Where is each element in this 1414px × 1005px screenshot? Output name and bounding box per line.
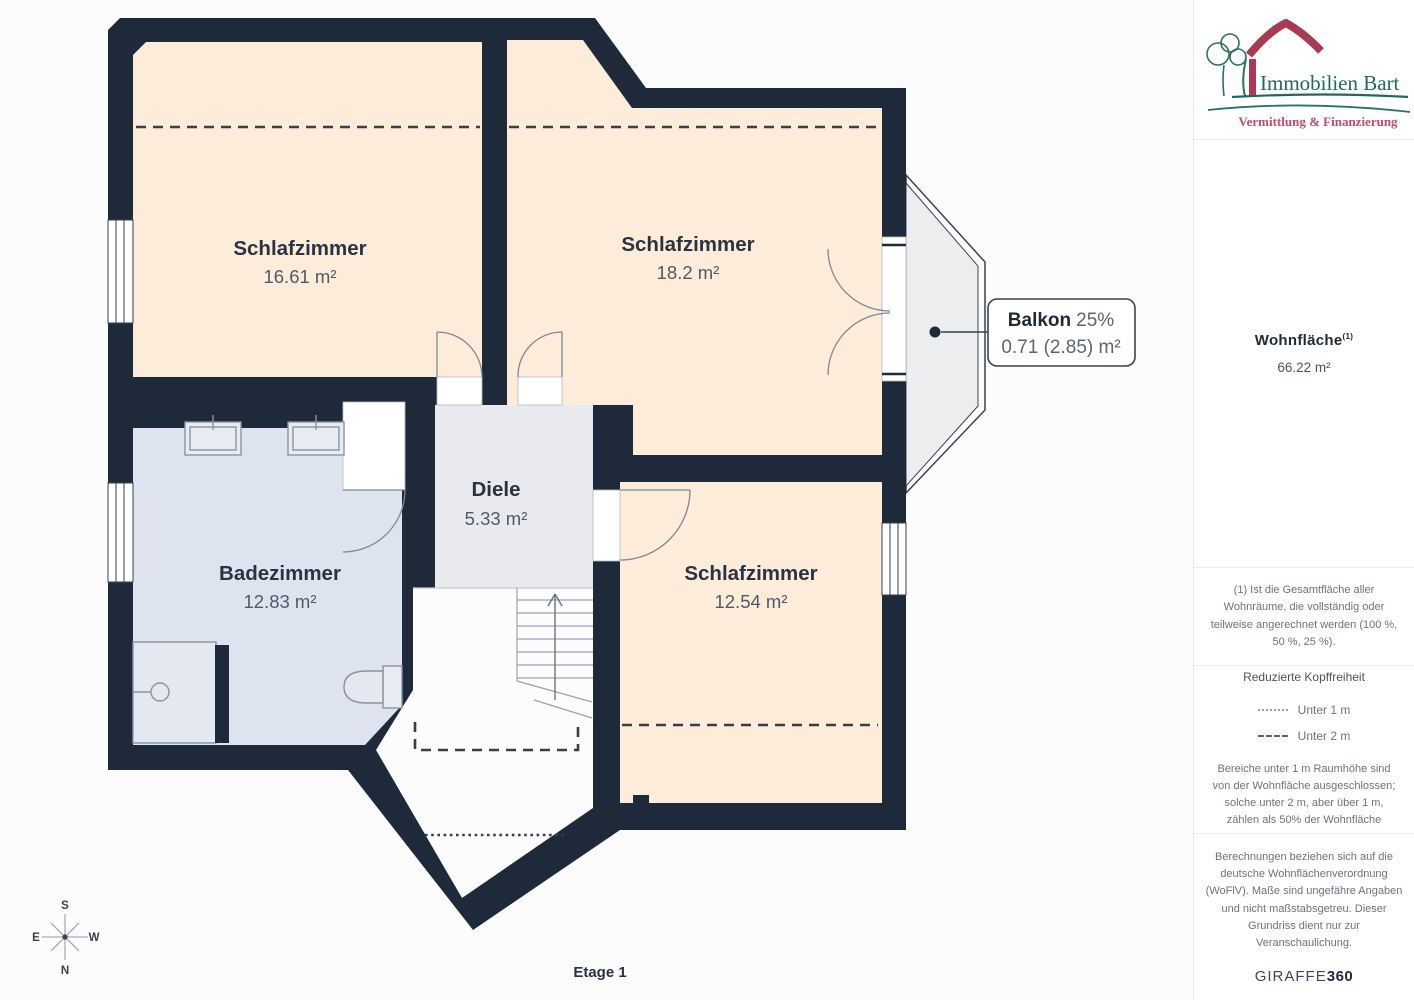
- compass-s: S: [61, 900, 69, 912]
- info-sidebar: Immobilien Bart Vermittlung & Finanzieru…: [1193, 0, 1414, 1000]
- room-fill-schlafzimmer-3: [620, 482, 882, 803]
- floor-label: Etage 1: [573, 964, 626, 981]
- toilet-tank: [383, 666, 402, 708]
- window: [108, 483, 133, 582]
- area-summary: Wohnfläche(1) 66.22 m²: [1194, 140, 1414, 568]
- footnote-text: (1) Ist die Gesamtfläche aller Wohnräume…: [1211, 582, 1398, 650]
- room-area: 5.33 m²: [465, 508, 528, 529]
- giraffe360-logo: GIRAFFE360: [1255, 968, 1354, 985]
- room-area: 12.83 m²: [243, 591, 316, 612]
- logo-swoosh: [1208, 105, 1410, 112]
- disclaimer-text: Berechnungen beziehen sich auf die deuts…: [1206, 849, 1403, 951]
- dashed-line-icon: [1258, 735, 1288, 737]
- balcony-area: 0.71 (2.85) m²: [1001, 337, 1120, 358]
- tree-icon: [1207, 34, 1246, 96]
- headroom-explanation: Bereiche unter 1 m Raumhöhe sind von der…: [1213, 761, 1396, 829]
- wall-notch: [633, 795, 649, 804]
- legend-item-under-2m: Unter 2 m: [1258, 729, 1351, 743]
- door-opening: [593, 490, 620, 561]
- dotted-line-icon: [1258, 709, 1288, 711]
- compass-e: E: [32, 932, 40, 944]
- window: [882, 523, 906, 595]
- balcony-percent: 25%: [1076, 310, 1114, 331]
- room-name: Schlafzimmer: [684, 562, 817, 585]
- room-name: Schlafzimmer: [621, 233, 754, 256]
- compass-w: W: [89, 932, 100, 944]
- door-opening: [437, 377, 482, 405]
- compass-n: N: [61, 965, 69, 977]
- headroom-legend-title: Reduzierte Kopffreiheit: [1243, 670, 1365, 684]
- headroom-legend: Reduzierte Kopffreiheit Unter 1 m Unter …: [1194, 666, 1414, 834]
- room-area: 16.61 m²: [263, 266, 336, 287]
- living-area-value: 66.22 m²: [1277, 360, 1330, 375]
- room-name: Schlafzimmer: [233, 237, 366, 260]
- window: [108, 220, 133, 323]
- disclaimer-section: Berechnungen beziehen sich auf die deuts…: [1194, 834, 1414, 1000]
- svg-text:Balkon25%: Balkon25%: [1008, 310, 1114, 331]
- brand-subtitle: Vermittlung & Finanzierung: [1238, 114, 1398, 129]
- floorplan-svg: Schlafzimmer 16.61 m² Schlafzimmer 18.2 …: [0, 0, 1193, 1000]
- compass-rose: S N E W: [32, 900, 99, 977]
- brand-title: Immobilien Bart: [1260, 71, 1400, 95]
- staircase: [413, 588, 593, 718]
- logo-underline: [1232, 94, 1408, 97]
- room-name: Badezimmer: [219, 562, 341, 585]
- leader-dot: [930, 327, 941, 338]
- brand-logo: Immobilien Bart Vermittlung & Finanzieru…: [1194, 0, 1414, 140]
- shower-partition-wall: [215, 645, 229, 743]
- balcony-bay: [906, 175, 985, 493]
- stairs-direction-arrow: [548, 594, 562, 700]
- room-fill-schlafzimmer-1: [133, 42, 482, 377]
- room-name: Diele: [472, 478, 521, 501]
- page: Schlafzimmer 16.61 m² Schlafzimmer 18.2 …: [0, 0, 1414, 1000]
- door-opening: [343, 402, 405, 490]
- door-opening: [518, 377, 562, 405]
- living-area-label: Wohnfläche(1): [1255, 332, 1353, 349]
- balcony-label: Balkon: [1008, 310, 1071, 331]
- room-area: 18.2 m²: [657, 262, 720, 283]
- room-area: 12.54 m²: [714, 591, 787, 612]
- toilet-bowl: [344, 671, 383, 703]
- footnote-marker: (1): [1343, 332, 1354, 341]
- legend-item-under-1m: Unter 1 m: [1258, 703, 1351, 717]
- floorplan-canvas: Schlafzimmer 16.61 m² Schlafzimmer 18.2 …: [0, 0, 1193, 1000]
- footnote-section: (1) Ist die Gesamtfläche aller Wohnräume…: [1194, 568, 1414, 666]
